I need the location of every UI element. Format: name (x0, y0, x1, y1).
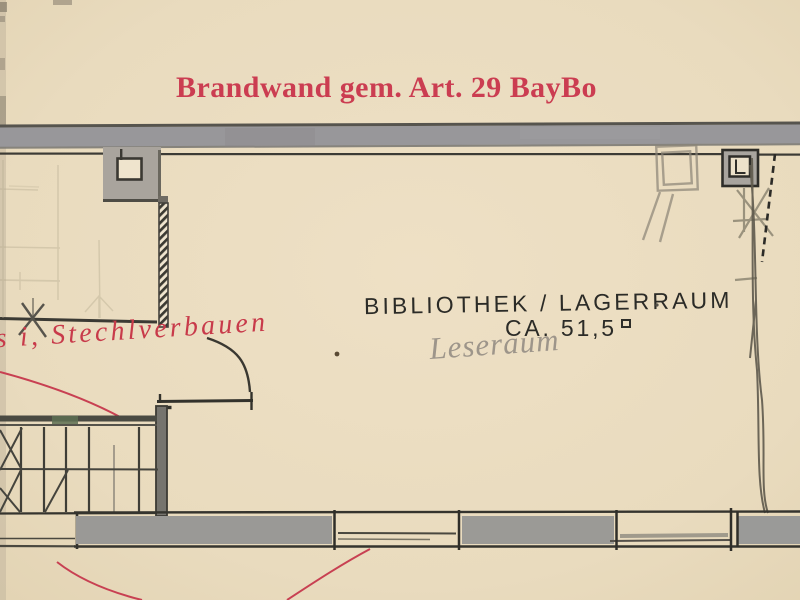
svg-text:Brandwand gem. Art. 29 BayBo: Brandwand gem. Art. 29 BayBo (176, 71, 597, 104)
